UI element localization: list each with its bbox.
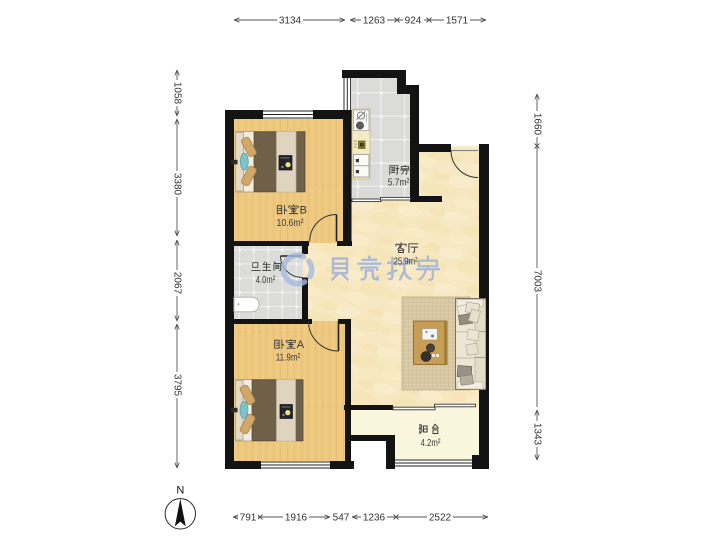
svg-text:A: A <box>297 339 305 351</box>
svg-text:1660: 1660 <box>532 113 543 136</box>
svg-text:1058: 1058 <box>172 82 183 105</box>
svg-text:N: N <box>176 484 184 496</box>
svg-text:11.9m²: 11.9m² <box>276 353 301 364</box>
svg-text:2067: 2067 <box>172 272 183 295</box>
svg-text:1343: 1343 <box>532 423 543 446</box>
svg-text:3134: 3134 <box>279 16 302 27</box>
svg-text:4.0m²: 4.0m² <box>256 275 276 286</box>
svg-text:3380: 3380 <box>172 173 183 196</box>
svg-text:1236: 1236 <box>363 513 386 524</box>
svg-text:924: 924 <box>405 16 422 27</box>
svg-text:3795: 3795 <box>172 374 183 397</box>
svg-text:1916: 1916 <box>285 513 308 524</box>
svg-text:547: 547 <box>333 513 350 524</box>
svg-text:1571: 1571 <box>446 16 469 27</box>
svg-text:7003: 7003 <box>532 270 543 293</box>
svg-text:4.2m²: 4.2m² <box>421 438 441 449</box>
svg-text:25.9m²: 25.9m² <box>394 257 418 268</box>
svg-text:B: B <box>300 204 307 216</box>
svg-text:10.6m²: 10.6m² <box>277 218 305 229</box>
svg-text:791: 791 <box>240 513 257 524</box>
svg-text:2522: 2522 <box>429 513 452 524</box>
svg-text:5.7m²: 5.7m² <box>388 178 410 189</box>
svg-text:1263: 1263 <box>363 16 386 27</box>
